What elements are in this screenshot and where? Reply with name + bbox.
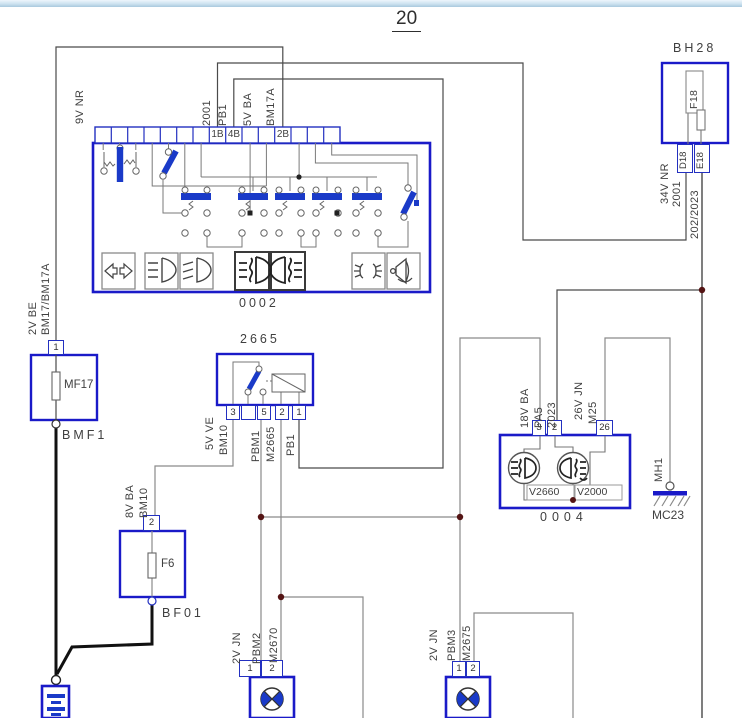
wire-2v-be-label: 2V BE <box>27 302 39 335</box>
fuse-box-f6 <box>120 531 185 605</box>
relay-pin-5: 5 <box>257 405 271 420</box>
fuse-icon <box>697 110 705 130</box>
sw1-lever <box>117 147 123 182</box>
wire-pb1-label: PB1 <box>285 434 297 456</box>
wire-34v-nr-label: 34V NR <box>659 163 671 204</box>
wire-8v-ba-label: 8V BA <box>124 485 136 518</box>
wire-m2665-label: M2665 <box>265 426 277 462</box>
relay-pin-blank <box>241 405 256 420</box>
bmf1-label: BMF1 <box>62 428 107 442</box>
cluster-0004 <box>500 435 630 508</box>
lamp-v2660-label: V2660 <box>529 486 559 498</box>
cell-1b-label: 1B <box>209 129 226 140</box>
f6-fuse-label: F6 <box>161 558 174 570</box>
cell-4b-label: 4B <box>226 129 242 140</box>
lamp-v2000-label: V2000 <box>577 486 607 498</box>
bh28-pin-d18: D18 <box>677 144 693 173</box>
relay-id: 2665 <box>240 332 280 346</box>
mf17-fuse-label: MF17 <box>64 379 93 391</box>
wire-pbm2-label: PBM2 <box>251 632 263 664</box>
wire-bm10-b-label: BM10 <box>138 488 150 518</box>
wire-2023-label: 2023 <box>546 402 558 428</box>
wire-pbm1-label: PBM1 <box>250 430 262 462</box>
fuse-icon <box>148 553 156 578</box>
ground-mc23-label: MC23 <box>652 508 684 522</box>
column-switch-id: 0002 <box>239 296 279 310</box>
column-switch-sliders <box>181 187 382 236</box>
wire-bm17-bm17a-label: BM17/BM17A <box>40 263 52 335</box>
bh28-pin-e18: E18 <box>694 144 710 173</box>
wire-202-2023-label: 202/2023 <box>689 190 701 239</box>
wire-m2675-label: M2675 <box>461 625 473 661</box>
wire-bm17a-label: BM17A <box>265 88 277 126</box>
wire-pb1-top-label: PB1 <box>217 104 229 126</box>
wire-2v-jn-left-label: 2V JN <box>231 632 243 664</box>
schematic-canvas <box>0 0 742 718</box>
wire-pbm3-label: PBM3 <box>446 629 458 661</box>
wire-pa5-label: PA5 <box>533 407 545 428</box>
fog-lamp-left <box>250 677 294 718</box>
wire-5v-ve-label: 5V VE <box>204 417 216 450</box>
fuse-box-mf17 <box>31 355 97 428</box>
column-switch-icon-row <box>102 252 420 290</box>
mf17-pin-1: 1 <box>48 340 64 355</box>
wire-2001-right-label: 2001 <box>671 181 683 207</box>
wire-2v-jn-right-label: 2V JN <box>428 629 440 661</box>
fuse-icon <box>52 372 60 400</box>
wire-18v-ba-label: 18V BA <box>519 388 531 428</box>
battery-icon <box>42 676 69 718</box>
column-switch-sw2 <box>160 149 176 179</box>
wire-5v-ba-label: 5V BA <box>242 93 254 126</box>
ground-icon <box>653 482 690 506</box>
bf01-label: BF01 <box>162 606 204 620</box>
cell-2b-label: 2B <box>275 129 291 140</box>
fuse-f18-label: F18 <box>688 90 700 109</box>
cluster-id: 0004 <box>540 510 588 524</box>
wire-m25-label: M25 <box>587 401 599 424</box>
relay-pin-1: 1 <box>292 405 306 420</box>
page-number: 20 <box>392 8 421 32</box>
relay-pin-2: 2 <box>275 405 289 420</box>
wire-26v-jn-label: 26V JN <box>573 382 585 420</box>
wire-m2670-label: M2670 <box>268 627 280 663</box>
lamp-right-pin-1: 1 <box>452 661 466 677</box>
wire-bm10-a-label: BM10 <box>218 425 230 455</box>
bh28-label: BH28 <box>673 41 716 55</box>
wire-mh1-label: MH1 <box>653 458 665 482</box>
fog-lamp-right <box>446 677 490 718</box>
relay-pin-3: 3 <box>226 405 240 420</box>
relay-2665 <box>217 354 313 405</box>
wire-9v-nr-label: 9V NR <box>74 90 86 124</box>
lamp-right-pin-2: 2 <box>466 661 480 677</box>
column-switch-sw3 <box>401 185 419 220</box>
wire-2001-label: 2001 <box>201 100 213 126</box>
wiring-diagram-page: 20 BH28 F18 D18 E18 34V NR 2001 202/2023… <box>0 0 742 718</box>
